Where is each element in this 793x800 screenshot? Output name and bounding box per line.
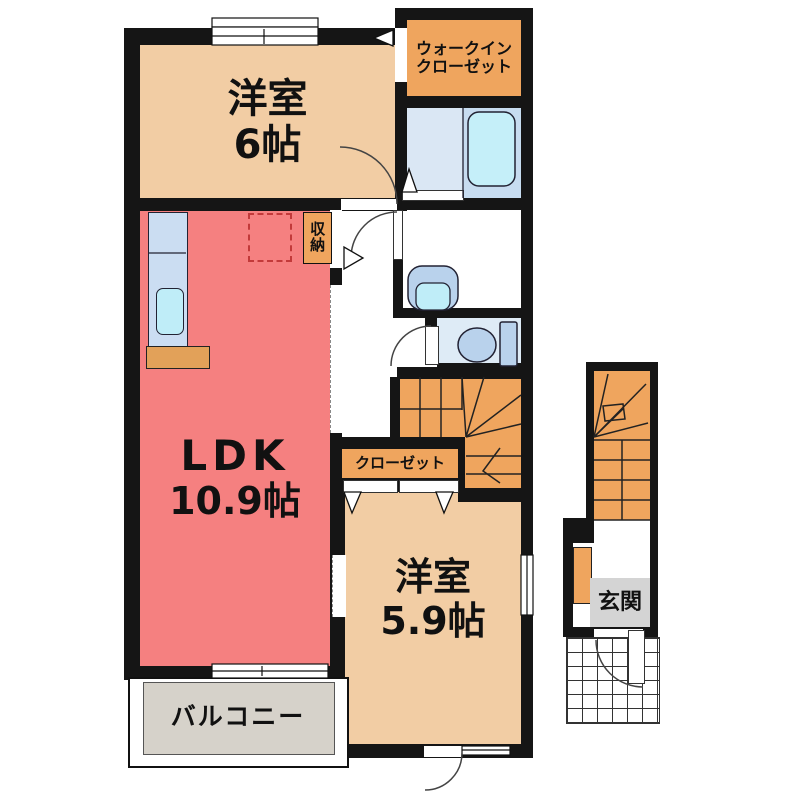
- bedroom1-label: 洋室 6帖: [140, 52, 395, 192]
- entry-stairs-lines: [594, 374, 650, 520]
- balcony-label: バルコニー: [143, 682, 333, 753]
- bedroom2-name: 洋室: [395, 556, 471, 600]
- wic-label: ウォークイン クローゼット: [407, 20, 521, 96]
- entrance-label: 玄関: [590, 582, 650, 624]
- ldk-label: LDK 10.9帖: [140, 420, 330, 535]
- wic-line2: クローゼット: [416, 58, 512, 76]
- plan-linework: [0, 0, 793, 800]
- wic-line1: ウォークイン: [416, 40, 512, 58]
- bathtub: [463, 108, 515, 198]
- closet-label: クローゼット: [342, 449, 458, 478]
- floor-plan: 洋室 6帖 ウォークイン クローゼット 収納 LDK 10.9帖 クローゼット …: [0, 0, 793, 800]
- bedroom2-label: 洋室 5.9帖: [345, 540, 521, 660]
- toilet: [458, 322, 517, 366]
- bedroom1-size: 6帖: [234, 122, 302, 168]
- storage-label: 収納: [303, 212, 330, 262]
- ldk-size: 10.9帖: [169, 480, 301, 524]
- ldk-name: LDK: [180, 432, 289, 480]
- bedroom2-size: 5.9帖: [380, 600, 485, 644]
- bedroom1-name: 洋室: [228, 76, 308, 122]
